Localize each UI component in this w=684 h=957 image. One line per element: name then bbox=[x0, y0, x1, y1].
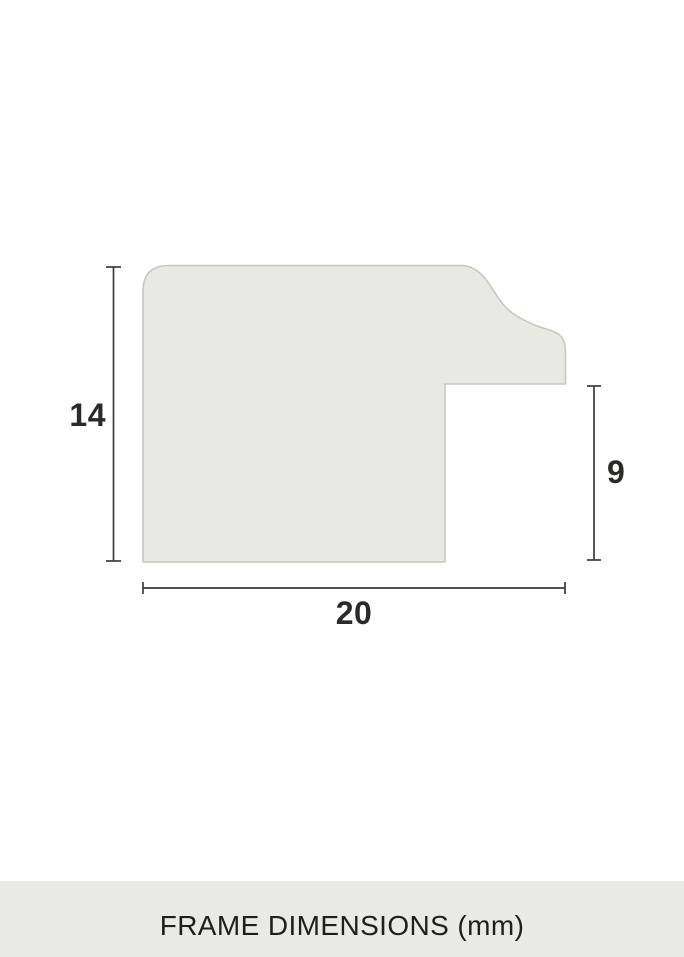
height-dimension-label: 14 bbox=[69, 397, 106, 433]
footer-band: FRAME DIMENSIONS (mm) bbox=[0, 881, 684, 957]
rabbet-dimension bbox=[587, 386, 601, 560]
frame-profile-diagram: 14 9 20 bbox=[0, 0, 684, 881]
frame-dimensions-figure: 14 9 20 FRAME DIMENSIONS (mm) bbox=[0, 0, 684, 957]
width-dimension bbox=[143, 582, 565, 594]
height-dimension bbox=[106, 267, 121, 561]
rabbet-dimension-label: 9 bbox=[607, 454, 625, 490]
frame-profile-shape bbox=[143, 266, 566, 563]
footer-caption: FRAME DIMENSIONS (mm) bbox=[0, 881, 684, 942]
width-dimension-label: 20 bbox=[336, 595, 373, 631]
